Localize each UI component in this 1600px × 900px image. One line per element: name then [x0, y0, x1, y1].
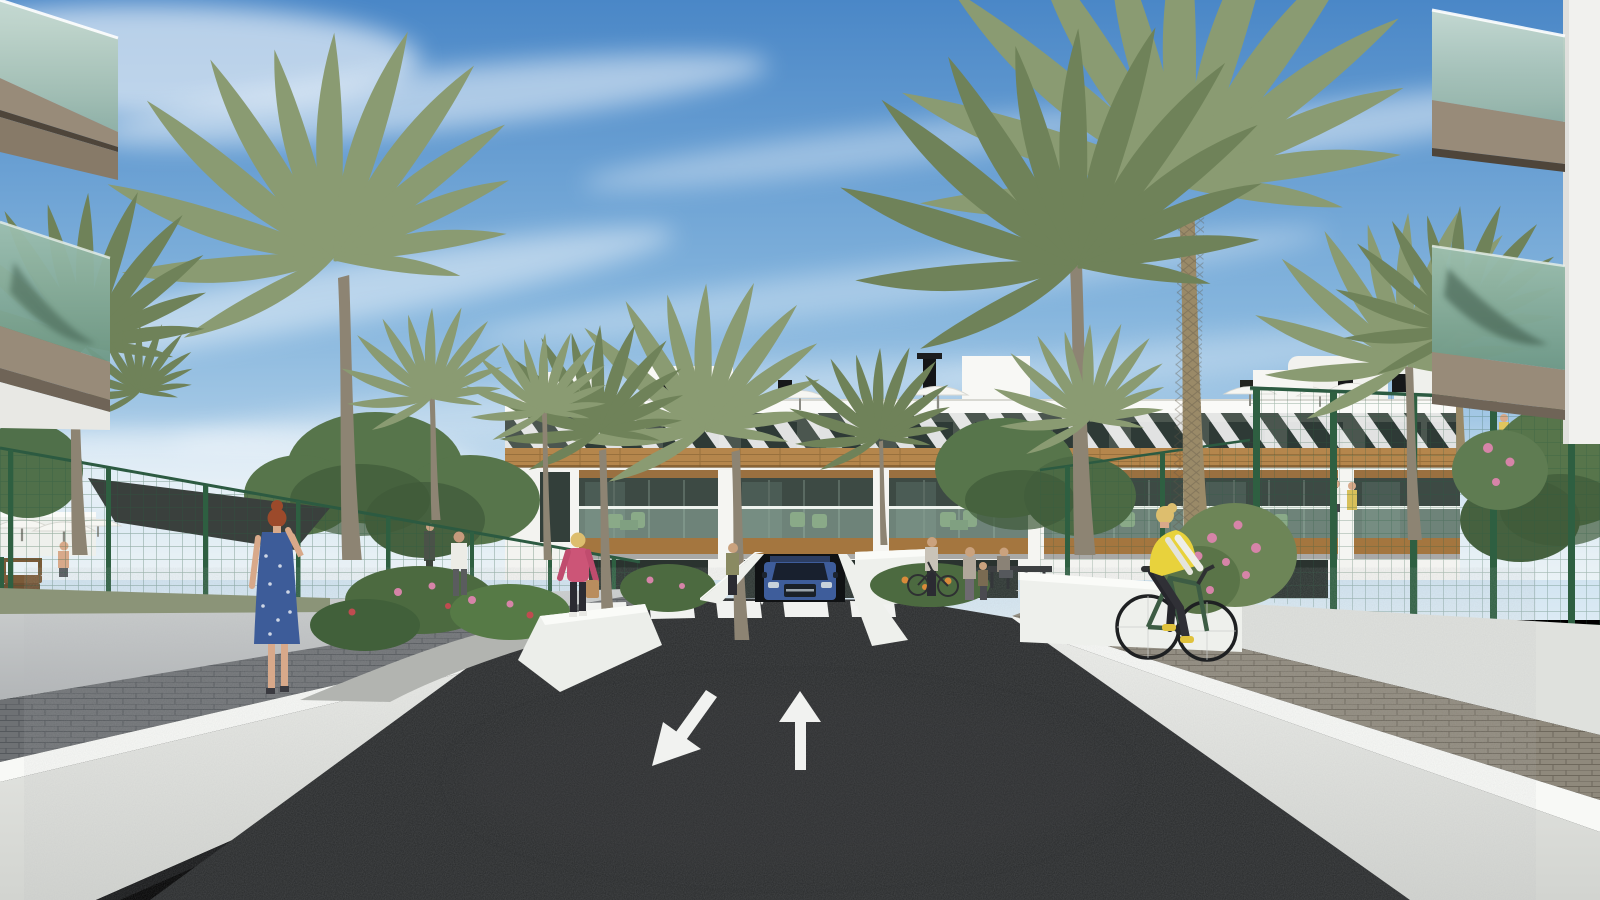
side-mirror — [833, 572, 838, 578]
headlight — [821, 582, 832, 588]
architectural-render-scene — [0, 0, 1600, 900]
shoe — [1180, 636, 1194, 643]
shoe — [1162, 624, 1176, 631]
terrace-bay — [573, 470, 724, 559]
scene-canvas — [0, 0, 1600, 900]
suv — [762, 556, 838, 600]
headlight — [768, 582, 779, 588]
balcony-glass — [1432, 246, 1565, 370]
ramp-side-garden — [620, 564, 716, 612]
side-mirror — [762, 572, 767, 578]
terrace-bay — [728, 470, 879, 559]
handbag — [586, 580, 599, 598]
windshield — [772, 563, 828, 580]
hair-bun — [271, 500, 283, 512]
